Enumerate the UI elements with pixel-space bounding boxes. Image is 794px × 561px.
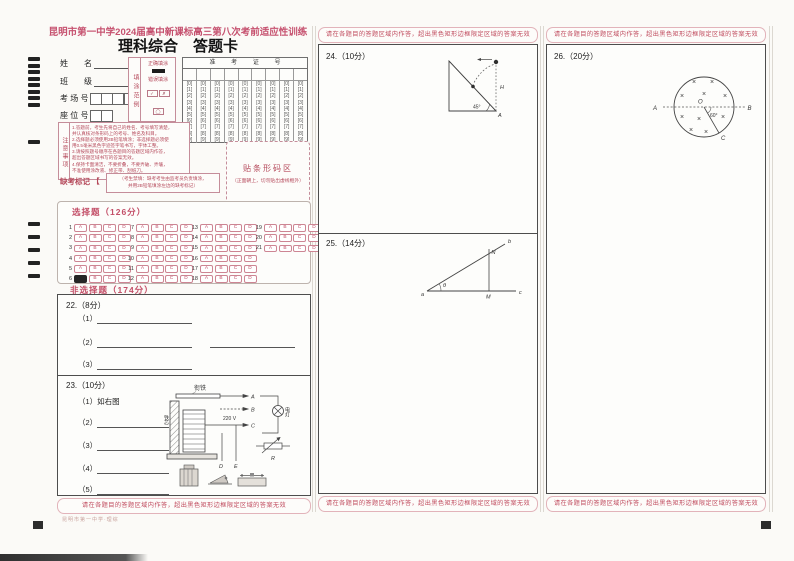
seat-number-cell[interactable]: [90, 110, 102, 122]
timing-mark: [28, 64, 40, 68]
q25-label: 25.（14分）: [326, 238, 370, 249]
q22-q23-divider: [58, 375, 310, 376]
ticket-write-cell[interactable]: [211, 69, 224, 81]
ticket-number-grid: 准 考 证 号 [0][1][2][3][4][5][6][7][8][9][0…: [182, 57, 308, 143]
q24-ball: [494, 60, 498, 64]
q26-label: 26.（20分）: [554, 51, 598, 62]
mcq-question-row: 21ABCD: [253, 240, 322, 250]
timing-mark: [28, 96, 40, 100]
q26-a-label: A: [652, 106, 657, 112]
q25-m-label: M: [486, 295, 491, 301]
answer-bubble-18D[interactable]: D: [244, 275, 257, 283]
ticket-column: [0][1][2][3][4][5][6][7][8][9]: [197, 69, 211, 143]
mcq-question-row: 5ABCD: [63, 260, 132, 270]
mcq-question-row: 8ABCD: [125, 229, 194, 239]
q23-label: 23.（10分）: [66, 380, 110, 391]
mcq-question-row: 3ABCD: [63, 240, 132, 250]
seat-boxes: [91, 111, 113, 120]
ticket-column: [0][1][2][3][4][5][6][7][8][9]: [211, 69, 225, 143]
ticket-column: [0][1][2][3][4][5][6][7][8][9]: [266, 69, 280, 143]
name-label: 姓 名: [60, 59, 92, 68]
field-into-page-icon: ×: [697, 116, 701, 123]
seat-field-row: 座 位 号: [60, 110, 113, 122]
field-into-page-icon: ×: [680, 114, 684, 121]
mcq-question-row: 20ABCD: [253, 229, 322, 239]
q24-landing-point: [471, 85, 475, 89]
separator-line: [769, 26, 770, 512]
armature-label: 衔铁: [194, 384, 206, 392]
q24-label: 24.（10分）: [326, 51, 370, 62]
room-number-cell[interactable]: [90, 93, 102, 105]
ticket-column: [0][1][2][3][4][5][6][7][8][9]: [239, 69, 253, 143]
field-into-page-icon: ×: [723, 93, 727, 100]
ticket-write-cell[interactable]: [294, 69, 307, 81]
timing-mark: [28, 235, 40, 239]
answer-bubble-12C[interactable]: C: [165, 275, 178, 283]
field-into-page-icon: ×: [702, 91, 706, 98]
question-number: 12: [125, 276, 134, 282]
room-field-row: 考 场 号: [60, 93, 136, 105]
ticket-column: [0][1][2][3][4][5][6][7][8][9]: [252, 69, 266, 143]
mid-answer-box: 24.（10分） 45° H A 25.（14分） θ a b c: [318, 44, 538, 494]
mcq-question-row: 14ABCD: [189, 229, 258, 239]
answer-bubble-21A[interactable]: A: [264, 245, 277, 253]
correct-fill-mark: [152, 69, 165, 73]
answer-bubble-21C[interactable]: C: [293, 245, 306, 253]
fill-example-vertical-label: 填涂范例: [129, 58, 141, 121]
wrong-fill-mark: ✓: [147, 90, 158, 97]
mcq-question-row: 9ABCD: [125, 240, 194, 250]
apparatus-photos: [180, 465, 266, 486]
timing-mark: [28, 77, 40, 81]
q24-q25-divider: [319, 233, 537, 234]
ticket-grid-header: 准 考 证 号: [183, 58, 307, 69]
corner-mark-right: [761, 521, 771, 529]
mcq-question-row: 13ABCD: [189, 219, 258, 229]
field-cross-group: ××××××××××: [680, 79, 727, 136]
wrong-fill-row-1: ✓✗◯: [142, 85, 174, 121]
ticket-columns: [0][1][2][3][4][5][6][7][8][9][0][1][2][…: [183, 69, 307, 143]
wrong-fill-mark: ◯: [153, 108, 164, 115]
timing-mark: [28, 57, 40, 61]
room-number-cell[interactable]: [101, 93, 113, 105]
answer-sheet-page: 昆明市第一中学2024届高中新课标高三第八次考前适应性训练 理科综合 答题卡 姓…: [0, 0, 794, 561]
question-number: 18: [189, 276, 198, 282]
barcode-title: 贴条形码区: [243, 163, 293, 174]
voltage-label: 220 V: [223, 416, 237, 422]
wrong-fill-label: 错误填涂: [142, 76, 174, 83]
seat-label: 座 位 号: [60, 111, 88, 120]
q24-diagram: 45° H A: [423, 55, 521, 131]
timing-mark: [28, 261, 40, 265]
ticket-write-cell[interactable]: [280, 69, 293, 81]
q23-circuit-diagram: 衔铁 铁芯 A B C 220 V: [150, 383, 312, 491]
warning-strip-left-bottom: 请在各题目的答题区域内作答，超出黑色矩形边框限定区域的答案无效: [57, 498, 311, 514]
answer-bubble-18C[interactable]: C: [229, 275, 242, 283]
answer-bubble-12A[interactable]: A: [136, 275, 149, 283]
ticket-column: [0][1][2][3][4][5][6][7][8][9]: [225, 69, 239, 143]
fill-example-box: 填涂范例 正确填涂 错误填涂 ✓✗◯ ●❘▭: [128, 57, 176, 122]
q24-height-label: H: [500, 85, 504, 91]
q22-blank-3: （3）: [78, 359, 192, 370]
q25-a-label: a: [421, 292, 424, 298]
separator-line: [312, 26, 313, 512]
q25-theta-label: θ: [443, 283, 446, 289]
warning-strip-right-top: 请在各题目的答题区域内作答，超出黑色矩形边框限定区域的答案无效: [546, 27, 766, 43]
timing-mark: [28, 83, 40, 87]
q22-answer-line-2a[interactable]: [97, 339, 192, 348]
mcq-question-row: 18ABCD: [189, 270, 258, 280]
q22-answer-line-3[interactable]: [97, 361, 192, 370]
timing-mark: [28, 70, 40, 74]
frq-section: 22.（8分） （1） （2） （3） 23.（10分） （1）如右图 （2） …: [57, 294, 311, 496]
mcq-section: 选择题（126分） 1ABCD2ABCD3ABCD4ABCD5ABCD6ABCD…: [57, 201, 311, 284]
q26-b-label: B: [748, 106, 752, 112]
mcq-question-row: 7ABCD: [125, 219, 194, 229]
answer-bubble-12B[interactable]: B: [151, 275, 164, 283]
ticket-column: [0][1][2][3][4][5][6][7][8][9]: [280, 69, 294, 143]
ticket-write-cell[interactable]: [252, 69, 265, 81]
answer-bubble-6C[interactable]: C: [103, 275, 116, 283]
q22-label: 22.（8分）: [66, 300, 106, 311]
class-label: 班 级: [60, 77, 92, 86]
mcq-column: 19ABCD20ABCD21ABCD: [253, 219, 322, 250]
timing-mark: [28, 248, 40, 252]
terminal-e-label: E: [234, 464, 238, 470]
core-label: 铁芯: [163, 414, 169, 425]
timing-mark: [28, 140, 40, 144]
timing-mark: [28, 274, 40, 278]
ticket-digit-bubble[interactable]: [9]: [197, 137, 210, 143]
q23-item-1: （1）如右图: [78, 396, 120, 407]
scan-shadow: [0, 554, 148, 561]
right-answer-box: 26.（20分） A B C O 60° ××××××××××: [546, 44, 766, 494]
barcode-subtitle: （正面朝上，切勿贴出虚线框外）: [232, 177, 304, 184]
absent-mark-note: （考生禁填：缺考考生由监考员负责填涂，并用2B铅笔填涂左边的缺考标记）: [106, 173, 220, 193]
ticket-write-cell[interactable]: [183, 69, 196, 81]
ticket-write-cell[interactable]: [266, 69, 279, 81]
answer-bubble-21B[interactable]: B: [279, 245, 292, 253]
q24-angle-label: 45°: [473, 105, 481, 111]
ticket-write-cell[interactable]: [239, 69, 252, 81]
terminal-c-label: C: [251, 424, 255, 430]
terminal-d-label: D: [219, 464, 223, 470]
separator-line: [540, 26, 541, 512]
terminal-b-label: B: [251, 408, 255, 414]
mcq-column: 1ABCD2ABCD3ABCD4ABCD5ABCD6ABCD: [63, 219, 132, 281]
q22-blank-2: （2）: [78, 337, 295, 348]
barcode-area: 贴条形码区 （正面朝上，切勿贴出虚线框外）: [226, 141, 310, 205]
wrong-fill-mark: ✗: [159, 90, 170, 97]
mcq-question-row: 11ABCD: [125, 260, 194, 270]
mcq-column: 7ABCD8ABCD9ABCD10ABCD11ABCD12ABCD: [125, 219, 194, 281]
field-into-page-icon: ×: [704, 129, 708, 136]
mcq-question-row: 6ABCD: [63, 270, 132, 280]
field-into-page-icon: ×: [680, 93, 684, 100]
separator-line: [315, 26, 316, 512]
mcq-column: 13ABCD14ABCD15ABCD16ABCD17ABCD18ABCD: [189, 219, 258, 281]
notice-text: 1.答题前，考生先将自己的姓名、考号填写清楚，并认真核对条形码上的考号、姓名及科…: [70, 123, 189, 179]
lamp-label: 电灯: [284, 406, 290, 418]
mcq-title: 选择题（126分）: [72, 206, 146, 218]
timing-mark: [28, 90, 40, 94]
ticket-write-cell[interactable]: [225, 69, 238, 81]
q26-o-label: O: [698, 100, 703, 106]
ticket-digit-bubble[interactable]: [9]: [211, 137, 224, 143]
answer-bubble-18A[interactable]: A: [200, 275, 213, 283]
terminal-a-label: A: [250, 395, 255, 401]
answer-bubble-18B[interactable]: B: [215, 275, 228, 283]
ticket-write-cell[interactable]: [197, 69, 210, 81]
mcq-question-row: 10ABCD: [125, 250, 194, 260]
mcq-question-row: 2ABCD: [63, 229, 132, 239]
q26-c-label: C: [721, 136, 726, 142]
field-into-page-icon: ×: [692, 79, 696, 86]
seat-number-cell[interactable]: [101, 110, 113, 122]
mcq-question-row: 17ABCD: [189, 260, 258, 270]
q26-angle-label: 60°: [710, 113, 718, 119]
corner-mark-left: [33, 521, 43, 529]
mcq-question-row: 16ABCD: [189, 250, 258, 260]
warning-strip-mid-bottom: 请在各题目的答题区域内作答，超出黑色矩形边框限定区域的答案无效: [318, 496, 538, 512]
mcq-question-row: 1ABCD: [63, 219, 132, 229]
mcq-question-row: 12ABCD: [125, 270, 194, 280]
ticket-column: [0][1][2][3][4][5][6][7][8][9]: [294, 69, 307, 143]
answer-bubble-6A[interactable]: A: [74, 275, 87, 283]
mcq-question-row: 15ABCD: [189, 240, 258, 250]
q22-blank-1: （1）: [78, 313, 192, 324]
q26-diagram: A B C O 60° ××××××××××: [647, 61, 762, 156]
rheostat-symbol: [256, 438, 290, 454]
field-into-page-icon: ×: [710, 79, 714, 86]
warning-strip-right-bottom: 请在各题目的答题区域内作答，超出黑色矩形边框限定区域的答案无效: [546, 496, 766, 512]
notice-box: 注意事项 1.答题前，考生先将自己的姓名、考号填写清楚，并认真核对条形码上的考号…: [58, 122, 190, 180]
print-footer-note: 昆明市第一中学·理综: [62, 516, 119, 523]
q25-c-label: c: [519, 290, 522, 296]
room-label: 考 场 号: [60, 94, 88, 103]
question-number: 21: [253, 245, 262, 251]
notice-vertical-label: 注意事项: [59, 123, 70, 179]
timing-mark: [28, 222, 40, 226]
field-into-page-icon: ×: [721, 114, 725, 121]
separator-line: [543, 26, 544, 512]
field-into-page-icon: ×: [689, 127, 693, 134]
q25-b-label: b: [508, 239, 511, 245]
warning-strip-mid-top: 请在各题目的答题区域内作答，超出黑色矩形边框限定区域的答案无效: [318, 27, 538, 43]
mcq-question-row: 19ABCD: [253, 219, 322, 229]
timing-mark: [28, 103, 40, 107]
page-title: 理科综合 答题卡: [44, 35, 312, 56]
mcq-question-row: 4ABCD: [63, 250, 132, 260]
answer-bubble-6B[interactable]: B: [89, 275, 102, 283]
resistor-label: R: [271, 456, 275, 462]
correct-fill-label: 正确填涂: [142, 60, 174, 67]
q22-answer-line-1[interactable]: [97, 315, 192, 324]
q25-n-label: N: [492, 250, 496, 256]
separator-line: [772, 26, 773, 512]
q25-diagram: θ a b c M N: [419, 235, 526, 307]
q24-vertex-label: A: [497, 113, 502, 119]
room-number-cell[interactable]: [112, 93, 124, 105]
question-number: 6: [63, 276, 72, 282]
q22-answer-line-2b[interactable]: [210, 339, 295, 348]
